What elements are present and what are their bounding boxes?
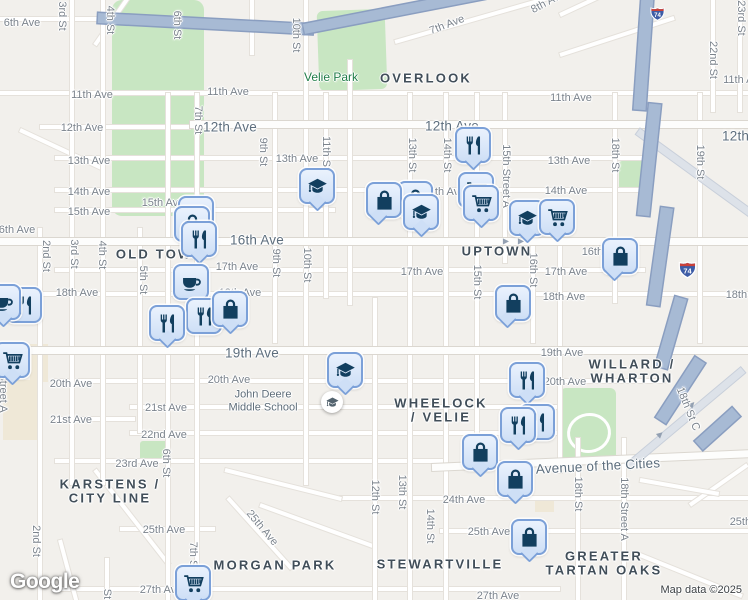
street-label-vertical: 6th St: [171, 11, 183, 40]
street-label-vertical: 10th St: [301, 248, 313, 283]
map-marker-bag[interactable]: [497, 461, 533, 497]
school-poi-label: John DeereMiddle School: [228, 389, 297, 414]
map-data-attribution: Map data ©2025: [661, 584, 743, 596]
street-label-vertical: 9th St: [270, 249, 282, 278]
map-marker-cart[interactable]: [0, 342, 30, 378]
map-marker-restaurant[interactable]: [509, 362, 545, 398]
street-label: 17th Ave: [216, 261, 259, 273]
map-marker-restaurant[interactable]: [181, 221, 217, 257]
coffee-cup-icon: [0, 291, 15, 314]
street-label: 13th Ave: [68, 155, 111, 167]
street-label: 19th Ave: [225, 346, 279, 361]
map-marker-bag[interactable]: [602, 238, 638, 274]
street-label-vertical: 4th St: [104, 6, 116, 35]
street-label: 20th Ave: [544, 376, 587, 388]
street-label-vertical: 4th St: [96, 241, 108, 270]
street-label: 13th Ave: [548, 155, 591, 167]
street-label: 11th Ave: [723, 74, 748, 86]
restaurant-utensils-icon: [188, 228, 211, 251]
graduation-cap-icon: [306, 175, 329, 198]
map-marker-restaurant[interactable]: [455, 127, 491, 163]
street-label: 19th Ave: [541, 347, 584, 359]
street-label-vertical: 18th St: [609, 138, 621, 173]
street-label: 11th Ave: [71, 89, 113, 101]
coffee-cup-icon: [180, 271, 203, 294]
restaurant-utensils-icon: [156, 312, 179, 335]
map-marker-bag[interactable]: [366, 182, 402, 218]
street-label-vertical: 14th St: [441, 138, 453, 173]
street-label-vertical: 2nd St: [40, 240, 52, 272]
road[interactable]: [689, 463, 748, 506]
school-poi-icon[interactable]: [321, 391, 343, 413]
street-label: 25th Ave: [468, 526, 511, 538]
street-label-vertical: 18th St: [572, 477, 584, 512]
street-label: 27th Ave: [477, 590, 520, 600]
map-marker-cart[interactable]: [175, 565, 211, 600]
road[interactable]: [55, 459, 445, 463]
street-label: 15th Ave: [68, 206, 111, 218]
map-marker-bag[interactable]: [511, 519, 547, 555]
street-label: 25th Ave: [730, 516, 748, 528]
svg-text:74: 74: [654, 13, 661, 19]
street-label-vertical: 6th St: [160, 449, 172, 478]
shopping-cart-icon: [1, 349, 24, 372]
neighborhood-label: CITY LINE: [69, 490, 151, 505]
neighborhood-label: MORGAN PARK: [214, 558, 337, 573]
road[interactable]: [558, 218, 562, 473]
road[interactable]: [0, 347, 748, 354]
street-label: 12th Ave: [203, 120, 257, 135]
street-label: 17th Ave: [401, 266, 444, 278]
street-label: 7th Ave: [428, 13, 466, 37]
shopping-bag-icon: [609, 245, 632, 268]
street-label-vertical: 5th St: [137, 266, 149, 295]
neighborhood-label: WHARTON: [590, 370, 673, 385]
map-canvas[interactable]: ▶▶▶▶ 6th Ave11th Ave11th Ave11th Ave11th…: [0, 0, 748, 600]
road[interactable]: [225, 468, 342, 501]
map-marker-cart[interactable]: [539, 199, 575, 235]
neighborhood-label: OVERLOOK: [380, 71, 472, 86]
street-label: 17th Ave: [545, 266, 588, 278]
street-label-vertical: 23rd St: [735, 0, 747, 35]
interstate-highway[interactable]: [695, 408, 740, 450]
graduation-cap-icon: [334, 359, 357, 382]
map-marker-cafe[interactable]: [0, 284, 21, 320]
street-label-vertical: 10th St: [290, 18, 302, 53]
neighborhood-label: STEWARTVILLE: [377, 557, 504, 572]
street-label: 21st Ave: [50, 414, 92, 426]
street-label-vertical: 7th St: [192, 106, 204, 135]
shopping-bag-icon: [219, 298, 242, 321]
road[interactable]: [698, 93, 702, 343]
graduation-cap-icon: [516, 207, 539, 230]
street-label: 18th Ave: [726, 289, 748, 301]
map-marker-cafe[interactable]: [173, 264, 209, 300]
road[interactable]: [0, 292, 748, 296]
map-marker-bag[interactable]: [462, 434, 498, 470]
shopping-cart-icon: [546, 206, 569, 229]
graduation-cap-icon: [325, 395, 340, 410]
shopping-bag-icon: [373, 189, 396, 212]
street-label: 25th Ave: [143, 524, 186, 536]
interstate-74-shield: 74: [677, 260, 698, 280]
street-label: 6th Ave: [4, 17, 41, 29]
map-marker-restaurant[interactable]: [500, 407, 536, 443]
street-label-vertical: 13th St: [396, 475, 408, 510]
google-logo[interactable]: Google: [10, 570, 79, 594]
map-marker-bag[interactable]: [212, 291, 248, 327]
street-label: 16th Ave: [0, 224, 35, 236]
street-label-vertical: 11th St: [320, 136, 332, 170]
road[interactable]: [640, 478, 719, 496]
neighborhood-label: TARTAN OAKS: [546, 562, 663, 577]
street-label: 22nd Ave: [141, 429, 187, 441]
street-label-vertical: 14th St: [424, 509, 436, 544]
map-marker-restaurant[interactable]: [149, 305, 185, 341]
svg-text:74: 74: [683, 266, 692, 275]
street-label-vertical: 13th St: [406, 138, 418, 173]
street-label: 14th Ave: [68, 186, 111, 198]
street-label-vertical: St: [101, 589, 113, 599]
street-label-vertical: 15th St: [471, 265, 483, 300]
shopping-cart-icon: [470, 192, 493, 215]
street-label-vertical: 12th St: [369, 480, 381, 515]
street-label: 20th Ave: [50, 378, 93, 390]
map-marker-school[interactable]: [299, 168, 335, 204]
street-label-vertical: 18th Street A: [618, 477, 630, 541]
street-label-vertical: 19th St: [694, 145, 706, 180]
shopping-bag-icon: [518, 526, 541, 549]
road[interactable]: [559, 16, 674, 57]
street-label-vertical: 9th St: [257, 138, 269, 167]
map-marker-bag[interactable]: [495, 285, 531, 321]
street-label: 21st Ave: [145, 402, 187, 414]
street-label: 24th Ave: [443, 494, 486, 506]
shopping-bag-icon: [502, 292, 525, 315]
street-label-vertical: 3rd St: [56, 1, 68, 30]
street-label-vertical: 2nd St: [30, 525, 42, 557]
street-label: 20th Ave: [208, 374, 251, 386]
interstate-74-shield: 74: [649, 6, 666, 22]
street-label-vertical: 22nd St: [707, 41, 719, 79]
street-label: 14th Ave: [545, 185, 588, 197]
park-area: [112, 0, 204, 216]
map-marker-school[interactable]: [403, 194, 439, 230]
road[interactable]: [373, 298, 377, 600]
street-label-vertical: 3rd St: [68, 239, 80, 268]
shopping-bag-icon: [469, 441, 492, 464]
restaurant-utensils-icon: [507, 414, 530, 437]
park-label: Velie Park: [304, 70, 358, 84]
street-label: 16th Ave: [230, 233, 284, 248]
shopping-cart-icon: [182, 572, 205, 595]
shopping-bag-icon: [504, 468, 527, 491]
street-label: 11th Ave: [207, 86, 249, 98]
road[interactable]: [348, 60, 352, 305]
restaurant-utensils-icon: [462, 134, 485, 157]
street-label-vertical: 15th Street A: [500, 144, 512, 208]
map-marker-school[interactable]: [327, 352, 363, 388]
neighborhood-label: / VELIE: [411, 409, 471, 424]
graduation-cap-icon: [410, 201, 433, 224]
street-label: 23rd Ave: [115, 458, 158, 470]
street-label: 12th Ave: [722, 129, 748, 144]
road[interactable]: [273, 93, 277, 343]
street-label: 25th Ave: [244, 508, 281, 548]
map-marker-cart[interactable]: [463, 185, 499, 221]
restaurant-utensils-icon: [516, 369, 539, 392]
street-label: 18th Ave: [56, 287, 99, 299]
street-label: 18th Ave: [543, 291, 586, 303]
street-label: 11th Ave: [550, 92, 592, 104]
street-label: 12th Ave: [61, 122, 104, 134]
street-label: 13th Ave: [276, 153, 319, 165]
neighborhood-label: UPTOWN: [462, 244, 533, 259]
